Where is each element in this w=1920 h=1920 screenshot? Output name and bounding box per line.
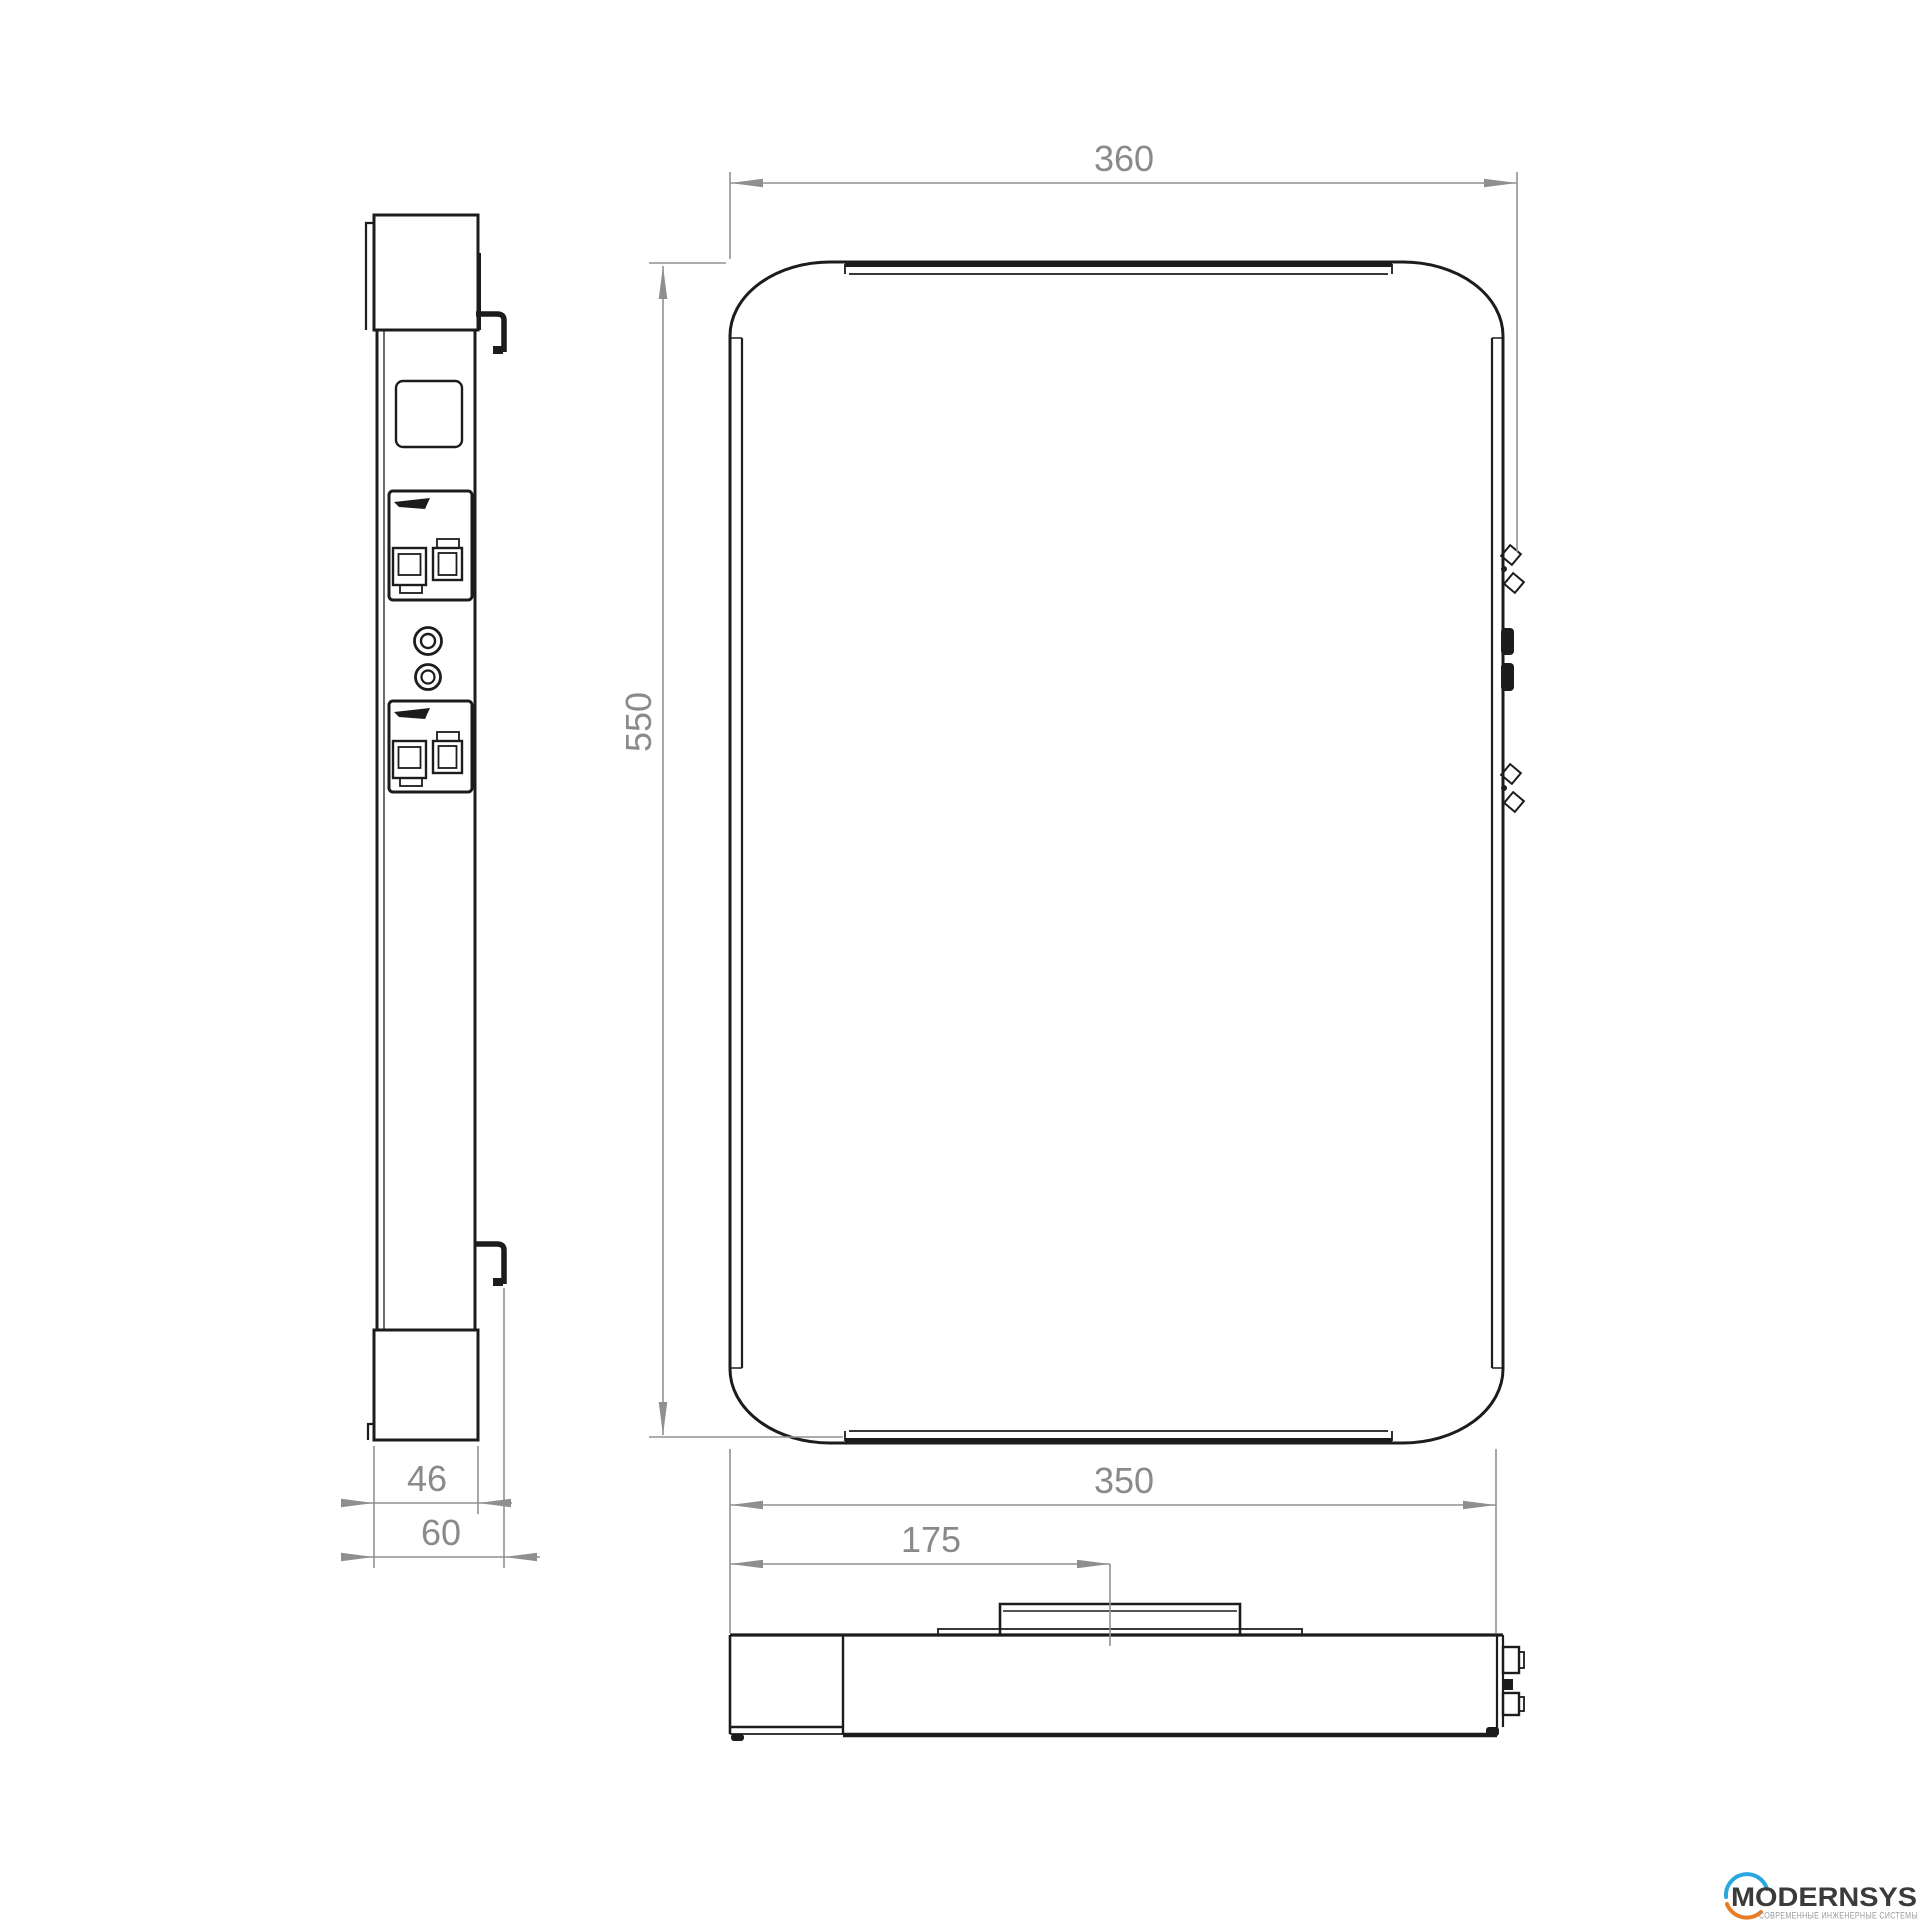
dim-label-body-width: 350 xyxy=(1094,1460,1154,1501)
front-panel-outline xyxy=(730,262,1503,1443)
terminal-block-2-lever xyxy=(394,708,430,719)
arrow-right xyxy=(1463,1501,1496,1510)
knob-2-outer xyxy=(416,665,441,690)
dim-label-front-width: 360 xyxy=(1094,138,1154,179)
control-window xyxy=(396,381,462,447)
arrow-right xyxy=(478,1499,511,1508)
bottom-view xyxy=(730,1604,1524,1741)
bottom-view-connectors xyxy=(1503,1647,1524,1715)
logo-wordmark: MODERNSYS xyxy=(1731,1882,1917,1912)
side-body xyxy=(377,330,475,1330)
arrow-right xyxy=(1077,1560,1110,1569)
terminal-2-left-tab xyxy=(400,778,422,786)
terminal-block-1 xyxy=(389,491,472,600)
terminal-2-right-cap xyxy=(437,732,459,741)
dim-label-body-depth: 46 xyxy=(407,1458,447,1499)
dimension-body-width: 350 xyxy=(730,1449,1496,1633)
logo-tagline: СОВРЕМЕННЫЕ ИНЖЕНЕРНЫЕ СИСТЕМЫ xyxy=(1759,1911,1918,1920)
knob-1-outer xyxy=(415,628,442,655)
dimension-mount-offset: 175 xyxy=(730,1519,1110,1646)
wing-nut-top-wing-2 xyxy=(1504,573,1524,593)
bottom-connector-a xyxy=(1503,1647,1519,1673)
arrow-right xyxy=(1484,179,1517,188)
side-view xyxy=(366,215,504,1440)
dim-label-mount-offset: 175 xyxy=(901,1519,961,1560)
arrow-right xyxy=(504,1553,537,1562)
panel-heater-drawing: 360 550 350 175 xyxy=(0,0,1920,1920)
front-view xyxy=(730,262,1524,1443)
terminal-2-left-inner xyxy=(399,747,421,768)
bottom-left-foot xyxy=(731,1734,744,1741)
dimensions: 360 550 350 175 xyxy=(341,138,1517,1646)
side-top-cap xyxy=(374,215,478,330)
arrow-left xyxy=(730,179,763,188)
wall-hook-bottom-foot xyxy=(493,1278,503,1286)
bottom-connector-b xyxy=(1503,1693,1519,1715)
terminal-1-left-inner xyxy=(399,554,421,575)
dimension-front-width: 360 xyxy=(730,138,1517,552)
arrow-left xyxy=(730,1560,763,1569)
arrow-top xyxy=(659,266,668,299)
bottom-connector-a-nub xyxy=(1519,1652,1524,1668)
bottom-connector-mid xyxy=(1503,1679,1513,1690)
side-knobs xyxy=(415,628,442,690)
terminal-block-1-lever xyxy=(394,498,430,509)
knob-2-inner xyxy=(422,671,435,684)
wing-nut-top-pin xyxy=(1501,566,1507,572)
arrow-left xyxy=(341,1499,374,1508)
terminal-1-right-inner xyxy=(439,553,457,575)
bottom-connector-b-nub xyxy=(1519,1697,1524,1711)
knob-1-inner xyxy=(421,634,435,648)
wing-nut-bottom-wing-2 xyxy=(1504,792,1524,812)
arrow-left xyxy=(730,1501,763,1510)
dim-label-total-depth: 60 xyxy=(421,1512,461,1553)
modernsys-logo: MODERNSYS СОВРЕМЕННЫЕ ИНЖЕНЕРНЫЕ СИСТЕМЫ xyxy=(1726,1874,1918,1920)
wall-hook-top-foot xyxy=(493,346,503,354)
terminal-1-right-cap xyxy=(437,539,459,548)
terminal-block-2 xyxy=(389,701,472,792)
wing-nut-bottom-pin xyxy=(1501,785,1507,791)
arrow-left xyxy=(341,1553,374,1562)
mount-plate xyxy=(1000,1604,1240,1635)
terminal-2-right-inner xyxy=(439,746,457,768)
cable-gland-2 xyxy=(1501,663,1514,691)
bottom-right-foot xyxy=(1486,1727,1499,1736)
arrow-bottom xyxy=(659,1402,668,1435)
cable-gland-1 xyxy=(1501,628,1514,655)
dim-label-front-height: 550 xyxy=(618,692,659,752)
terminal-1-left-tab xyxy=(400,585,422,593)
side-bottom-cap xyxy=(374,1330,478,1440)
technical-drawing-page: 360 550 350 175 xyxy=(0,0,1920,1920)
